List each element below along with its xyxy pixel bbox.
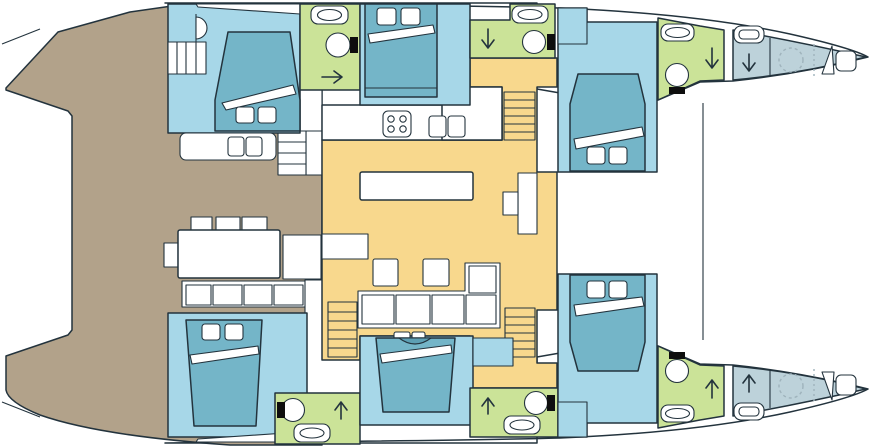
pillow xyxy=(236,107,254,123)
sofa-seat xyxy=(469,266,496,293)
cockpit-chair xyxy=(191,217,212,230)
bench-seat xyxy=(274,285,303,305)
bench-seat xyxy=(186,285,211,305)
wall-segment xyxy=(306,131,322,175)
armchair xyxy=(423,259,449,286)
armchair xyxy=(373,259,398,286)
cabin-floor-extension xyxy=(473,338,513,366)
vberth-seat xyxy=(836,375,856,395)
pillow xyxy=(401,8,420,25)
companionway-steps-starboard xyxy=(278,131,306,175)
stairway-port-aft xyxy=(328,302,357,357)
cockpit-sideboard xyxy=(283,235,321,279)
pillow xyxy=(258,107,276,123)
wardrobe xyxy=(558,402,587,437)
double-bed xyxy=(570,275,645,371)
pillow xyxy=(202,324,220,340)
port-forepeak xyxy=(733,366,866,420)
port-fwd-cabin xyxy=(558,274,657,437)
galley-sink xyxy=(429,116,446,137)
starboard-aft-bathroom xyxy=(300,4,360,90)
toilet-tank xyxy=(350,37,358,53)
pillow xyxy=(587,281,605,298)
toilet xyxy=(525,392,548,415)
sofa-seat xyxy=(396,295,430,324)
starboard-fwd-bathroom xyxy=(658,18,724,100)
cockpit-table xyxy=(178,230,280,278)
toilet-tank xyxy=(669,87,685,94)
dresser-drawer xyxy=(228,137,244,156)
deck-plan xyxy=(0,0,890,446)
stove xyxy=(383,111,411,137)
toilet xyxy=(326,33,350,57)
pillow xyxy=(587,147,605,164)
galley-sink xyxy=(448,116,465,137)
toilet xyxy=(666,64,689,87)
dresser-drawer xyxy=(246,137,262,156)
washbasin xyxy=(512,6,548,23)
sofa-seat xyxy=(362,295,394,324)
cockpit-chair xyxy=(216,217,240,230)
washbasin xyxy=(294,424,330,442)
sofa-seat xyxy=(466,295,496,324)
toilet xyxy=(523,31,546,54)
saloon-sideboard xyxy=(322,234,368,259)
sofa-seat xyxy=(432,295,464,324)
washbasin xyxy=(311,6,348,24)
starboard-forepeak xyxy=(733,26,866,80)
cockpit-chair xyxy=(164,243,178,267)
bench-seat xyxy=(244,285,272,305)
double-bed xyxy=(186,320,262,426)
cockpit-chair xyxy=(242,217,267,230)
pillow xyxy=(377,8,396,25)
starboard-fwd-cabin xyxy=(558,8,657,172)
starboard-mid-cabin xyxy=(360,4,470,105)
saloon-table xyxy=(360,172,473,200)
toilet-tank xyxy=(277,402,285,418)
toilet-tank xyxy=(547,395,555,411)
washbasin xyxy=(504,416,540,434)
port-fwd-bathroom xyxy=(658,346,724,428)
toilet xyxy=(666,360,689,383)
vberth-seat xyxy=(836,51,856,71)
port-aft-bathroom xyxy=(275,393,360,444)
pillow xyxy=(225,324,243,340)
nav-desk-seat xyxy=(503,192,518,215)
starboard-mid-bathroom xyxy=(470,4,555,58)
stairway-starboard xyxy=(504,92,535,140)
toilet-tank xyxy=(669,352,685,359)
nav-desk xyxy=(518,173,537,234)
wardrobe xyxy=(558,8,587,44)
pillow xyxy=(609,281,627,298)
cabin-steps xyxy=(168,42,206,74)
pillow xyxy=(609,147,627,164)
double-bed xyxy=(570,74,645,171)
bench-seat xyxy=(213,285,242,305)
stern-edge-top xyxy=(2,29,40,44)
toilet-tank xyxy=(547,34,555,50)
port-mid-bathroom xyxy=(470,388,558,437)
